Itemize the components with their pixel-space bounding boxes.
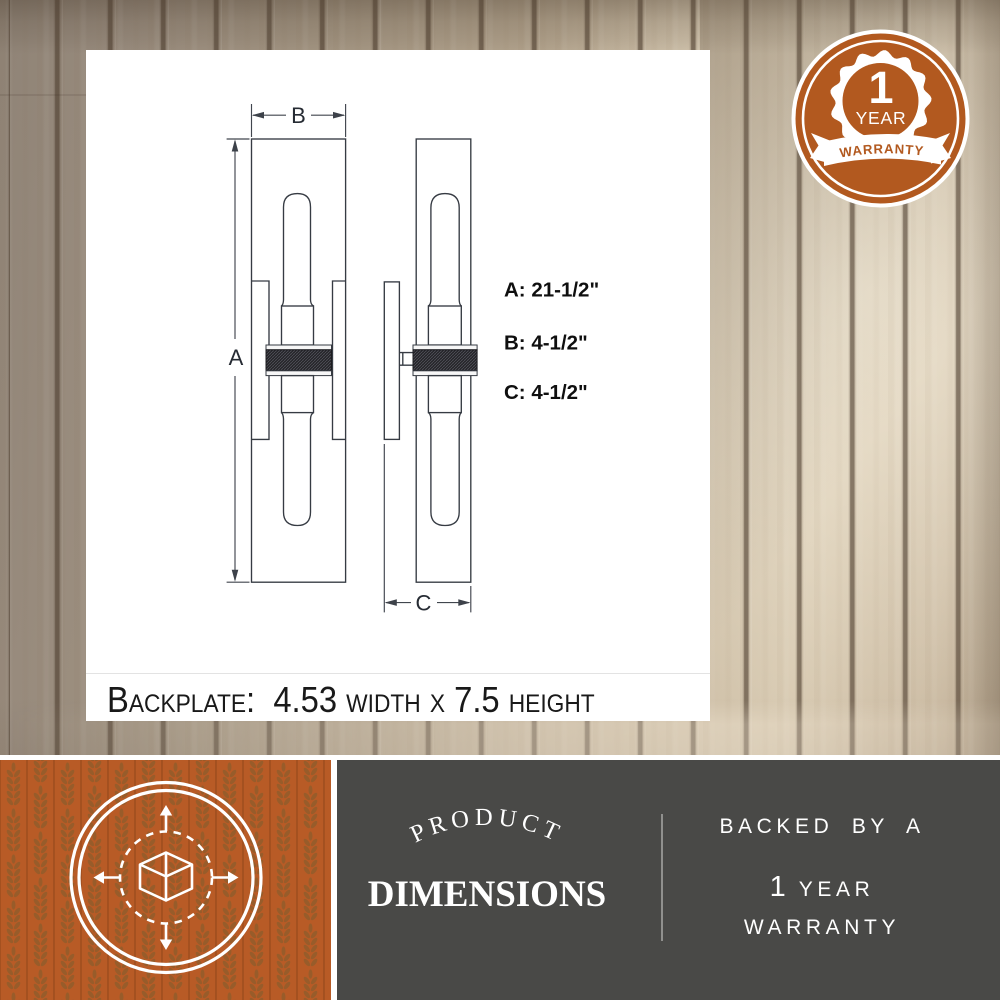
svg-text:B: B <box>291 103 306 128</box>
svg-text:A: A <box>229 345 244 370</box>
svg-text:1: 1 <box>868 62 893 113</box>
svg-text:PRODUCT: PRODUCT <box>406 804 567 849</box>
svg-text:YEAR: YEAR <box>856 108 907 128</box>
svg-text:C: C <box>416 591 432 616</box>
svg-text:B: 4-1/2": B: 4-1/2" <box>504 332 588 355</box>
svg-text:C: 4-1/2": C: 4-1/2" <box>504 381 588 404</box>
svg-text:A: 21-1/2": A: 21-1/2" <box>504 279 599 302</box>
